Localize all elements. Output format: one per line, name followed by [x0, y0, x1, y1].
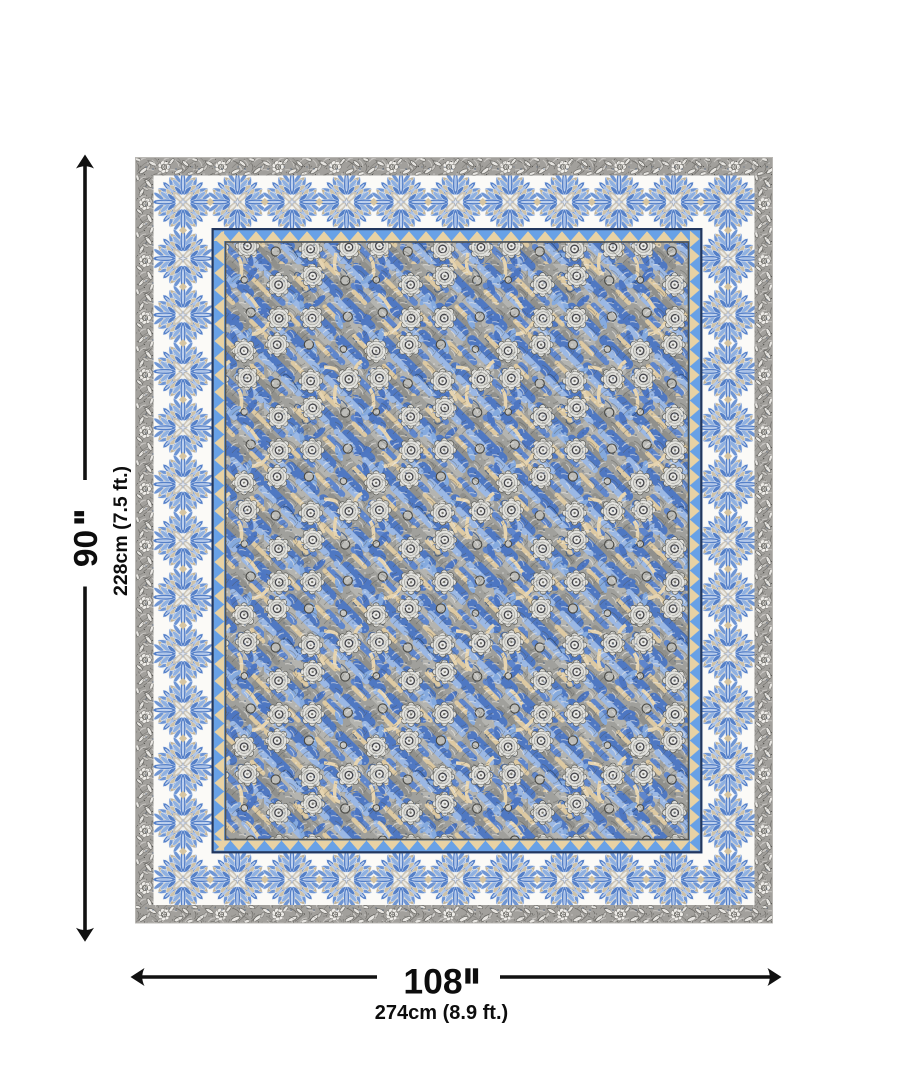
svg-text:274cm (8.9 ft.): 274cm (8.9 ft.): [375, 1002, 508, 1024]
svg-text:108: 108: [403, 962, 462, 1002]
svg-text:228cm (7.5 ft.): 228cm (7.5 ft.): [110, 466, 132, 596]
svg-text:90: 90: [68, 530, 105, 567]
